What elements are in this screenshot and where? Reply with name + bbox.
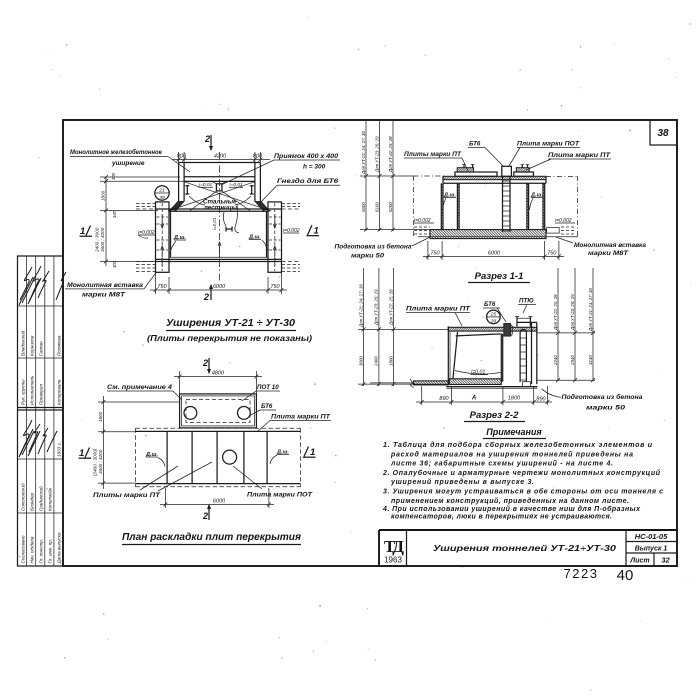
svg-text:Приямок 400 х 400: Приямок 400 х 400 <box>274 153 338 160</box>
svg-text:Разрез 2-2: Разрез 2-2 <box>470 410 519 421</box>
svg-text:Блиндер: Блиндер <box>30 492 35 511</box>
svg-text:5000: 5000 <box>361 202 366 212</box>
svg-text:1: 1 <box>314 226 319 237</box>
svg-text:Монолитная вставка: Монолитная вставка <box>67 282 144 289</box>
svg-text:3600 ; 4200: 3600 ; 4200 <box>100 227 105 252</box>
svg-text:Для УТ-22; 25; 28: Для УТ-22; 25; 28 <box>388 289 393 326</box>
svg-text:Плита марки ПОТ: Плита марки ПОТ <box>517 141 580 148</box>
svg-text:(2400 ; 3000): (2400 ; 3000) <box>93 448 98 476</box>
svg-text:800: 800 <box>253 154 263 160</box>
svg-text:Гнездо для БТ6: Гнездо для БТ6 <box>277 177 338 185</box>
svg-text:БТ6: БТ6 <box>484 301 496 308</box>
svg-text:ТД: ТД <box>384 537 404 556</box>
svg-text:4800: 4800 <box>212 371 225 377</box>
svg-text:Для УТ-21; 24; 27; 30: Для УТ-21; 24; 27; 30 <box>358 284 363 328</box>
svg-text:38: 38 <box>657 128 669 139</box>
svg-text:2: 2 <box>202 358 208 368</box>
svg-text:марки 50: марки 50 <box>351 253 385 260</box>
svg-text:листе 36; габаритные схемы уши: листе 36; габаритные схемы уширений - на… <box>390 460 613 468</box>
svg-text:марки М8Т: марки М8Т <box>588 250 629 257</box>
svg-text:Подготовка из бетона: Подготовка из бетона <box>335 244 413 251</box>
svg-text:3140: 3140 <box>588 355 593 365</box>
svg-text:1. Таблица для подбора сборных: 1. Таблица для подбора сборных железобет… <box>383 441 653 449</box>
svg-text:БТ6: БТ6 <box>469 141 481 148</box>
svg-text:Выпуск 1: Выпуск 1 <box>635 546 668 553</box>
svg-text:890: 890 <box>439 396 449 402</box>
svg-text:Для УТ-21; 24; 27; 30: Для УТ-21; 24; 27; 30 <box>361 131 366 175</box>
svg-text:Гл. констр.: Гл. констр. <box>39 539 44 564</box>
svg-text:4. При использовании уширений: 4. При использовании уширений в качестве… <box>382 505 641 513</box>
svg-text:890: 890 <box>536 397 546 403</box>
svg-text:6000: 6000 <box>213 284 226 290</box>
svg-text:компенсаторов, люки в перекрыт: компенсаторов, люки в перекрытиях не уст… <box>391 513 612 520</box>
svg-text:3000: 3000 <box>358 356 363 366</box>
svg-text:марки 50: марки 50 <box>586 405 626 412</box>
svg-text:Монолитная вставка: Монолитная вставка <box>574 242 647 249</box>
svg-text:6100: 6100 <box>374 202 379 212</box>
svg-text:Плита марки ПТ: Плита марки ПТ <box>406 306 472 313</box>
svg-text:32: 32 <box>661 556 670 565</box>
svg-text:25: 25 <box>490 311 497 317</box>
svg-text:лестницы: лестницы <box>203 204 238 211</box>
svg-text:Рук. группы: Рук. группы <box>21 379 26 405</box>
svg-text:1: 1 <box>79 448 84 459</box>
svg-text:Уширения тоннелей УТ-21÷УТ-3: Уширения тоннелей УТ-21÷УТ-30 <box>433 543 616 553</box>
svg-text:4200: 4200 <box>214 154 227 160</box>
svg-text:1: 1 <box>80 226 85 237</box>
svg-text:Подготовка из бетона: Подготовка из бетона <box>562 394 644 401</box>
svg-text:Для УТ-22; 25; 28: Для УТ-22; 25; 28 <box>553 294 558 331</box>
svg-text:уширений приведены в выпуске 3: уширений приведены в выпуске 3. <box>390 478 534 486</box>
svg-text:Для УТ-23; 26; 29: Для УТ-23; 26; 29 <box>374 289 379 326</box>
svg-text:21: 21 <box>158 188 165 194</box>
svg-text:План раскладки плит перекры: План раскладки плит перекрытия <box>122 532 301 543</box>
svg-text:1800: 1800 <box>101 190 106 201</box>
svg-text:Исполнитель: Исполнитель <box>30 375 35 405</box>
svg-text:расход материалов на уширения: расход материалов на уширения тоннелей п… <box>390 450 633 458</box>
svg-text:800: 800 <box>177 154 187 160</box>
svg-text:Плиты марки ПТ: Плиты марки ПТ <box>404 151 462 158</box>
svg-text:ПОТ 10: ПОТ 10 <box>257 384 279 391</box>
svg-text:750: 750 <box>270 284 280 290</box>
svg-text:i=0,01: i=0,01 <box>212 217 217 230</box>
svg-text:Владовский: Владовский <box>20 330 26 356</box>
svg-text:2: 2 <box>203 292 209 302</box>
svg-text:Для УТ-21; 24; 27; 30: Для УТ-21; 24; 27; 30 <box>588 288 593 332</box>
svg-text:340: 340 <box>112 210 117 218</box>
svg-text:См. примечание 4: См. примечание 4 <box>107 384 172 391</box>
svg-text:40: 40 <box>617 567 634 584</box>
svg-text:Нач. отдела: Нач. отдела <box>30 536 35 563</box>
svg-text:Уширения УТ-21 ÷ УТ-30: Уширения УТ-21 ÷ УТ-30 <box>166 318 295 329</box>
svg-text:300: 300 <box>111 172 116 180</box>
svg-text:Полякова: Полякова <box>57 335 62 356</box>
svg-text:Для УТ-23; 26; 29: Для УТ-23; 26; 29 <box>374 136 379 173</box>
svg-text:750: 750 <box>430 250 440 256</box>
svg-text:А: А <box>471 396 476 402</box>
svg-text:6000: 6000 <box>213 499 226 505</box>
svg-text:Монолитное железобетонное: Монолитное железобетонное <box>70 148 162 156</box>
svg-text:Копштейн: Копштейн <box>47 487 53 511</box>
svg-text:Разрез 1-1: Разрез 1-1 <box>475 271 524 282</box>
svg-text:Примечания: Примечания <box>486 427 542 437</box>
svg-text:1963: 1963 <box>384 556 402 565</box>
svg-text:1: 1 <box>310 447 315 458</box>
svg-text:Согласовано: Согласовано <box>21 535 26 563</box>
svg-text:БТ6: БТ6 <box>261 403 273 410</box>
svg-text:3. Уширения могут устраиваться: 3. Уширения могут устраиваться в обе сто… <box>383 488 663 496</box>
svg-text:7223: 7223 <box>564 566 599 581</box>
svg-text:6000: 6000 <box>488 250 501 256</box>
svg-text:уширение: уширение <box>111 160 145 167</box>
svg-text:2240: 2240 <box>553 355 558 366</box>
svg-text:2940: 2940 <box>570 355 575 366</box>
svg-text:ПТЮ: ПТЮ <box>519 298 534 305</box>
svg-text:НС-01-05: НС-01-05 <box>635 532 668 541</box>
svg-text:h = 300: h = 300 <box>303 164 326 171</box>
svg-text:применением конструкций, приве: применением конструкций, приведенных на … <box>391 497 629 505</box>
svg-text:2400: 2400 <box>374 356 379 367</box>
svg-text:Плита марки ПТ: Плита марки ПТ <box>271 414 331 421</box>
svg-text:750: 750 <box>547 250 557 256</box>
svg-text:39: 39 <box>491 318 497 324</box>
svg-text:39: 39 <box>159 195 165 201</box>
svg-text:Плита марки ПОТ: Плита марки ПОТ <box>247 492 313 499</box>
svg-text:3600 ; 4200: 3600 ; 4200 <box>98 449 103 474</box>
svg-text:(Плиты перекрытия не показа: (Плиты перекрытия не показаны) <box>147 334 312 343</box>
svg-text:Для УТ-23; 26; 29: Для УТ-23; 26; 29 <box>570 294 575 331</box>
svg-text:1800: 1800 <box>508 396 521 402</box>
svg-text:марки М8Т: марки М8Т <box>82 292 127 299</box>
svg-text:Соколовский: Соколовский <box>20 483 26 511</box>
svg-text:750: 750 <box>157 284 167 290</box>
svg-text:1800: 1800 <box>388 356 393 366</box>
svg-text:Плита марки ПТ: Плита марки ПТ <box>548 152 611 159</box>
svg-text:2400 ; 3000: 2400 ; 3000 <box>95 227 100 253</box>
svg-text:1963 г.: 1963 г. <box>57 442 62 457</box>
svg-text:2: 2 <box>202 511 208 521</box>
svg-text:300: 300 <box>112 260 117 268</box>
svg-text:Гл. инж. пр.: Гл. инж. пр. <box>48 539 53 564</box>
svg-text:Копировала: Копировала <box>57 379 62 405</box>
svg-text:Градинский: Градинский <box>38 486 44 511</box>
svg-text:1800: 1800 <box>98 411 103 422</box>
svg-text:Дата выпуска: Дата выпуска <box>57 532 62 564</box>
svg-text:2: 2 <box>204 134 210 144</box>
svg-text:Корнилов: Корнилов <box>30 335 35 356</box>
svg-text:6200: 6200 <box>388 202 393 212</box>
svg-text:Галкин: Галкин <box>39 341 44 356</box>
svg-text:Проверил: Проверил <box>39 384 44 405</box>
svg-text:Лист: Лист <box>629 558 649 565</box>
svg-text:Плиты марки ПТ: Плиты марки ПТ <box>93 492 161 499</box>
svg-text:Для УТ-22; 25; 28: Для УТ-22; 25; 28 <box>388 136 393 173</box>
svg-text:2. Опалубочные и арматурные че: 2. Опалубочные и арматурные чертежи моно… <box>382 469 661 477</box>
